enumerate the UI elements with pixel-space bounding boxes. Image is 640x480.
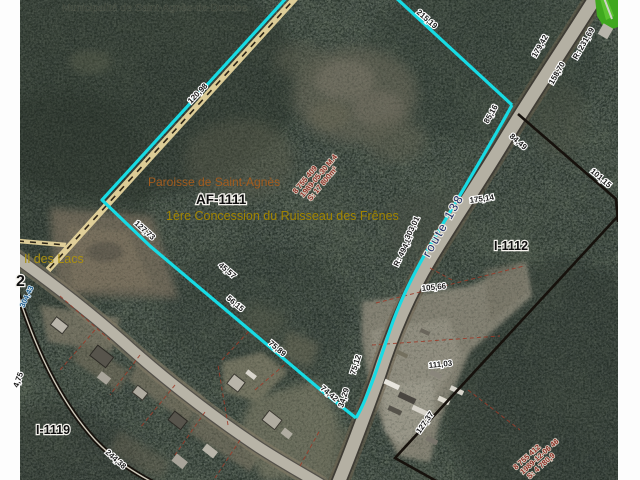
svg-text:Paroisse de Saint-Agnès: Paroisse de Saint-Agnès [148, 175, 280, 189]
svg-text:1ère Concession du Ruisseau de: 1ère Concession du Ruisseau des Frênes [166, 209, 399, 223]
svg-text:I-1119: I-1119 [36, 423, 70, 437]
svg-text:Il des Lacs: Il des Lacs [24, 252, 84, 266]
svg-text:Municipalité de Saint-Agnès-de: Municipalité de Saint-Agnès-de-Dundee [62, 2, 248, 14]
svg-text:I-1112: I-1112 [494, 239, 528, 253]
svg-text:2: 2 [16, 273, 25, 290]
svg-text:AF-1111: AF-1111 [196, 192, 247, 207]
